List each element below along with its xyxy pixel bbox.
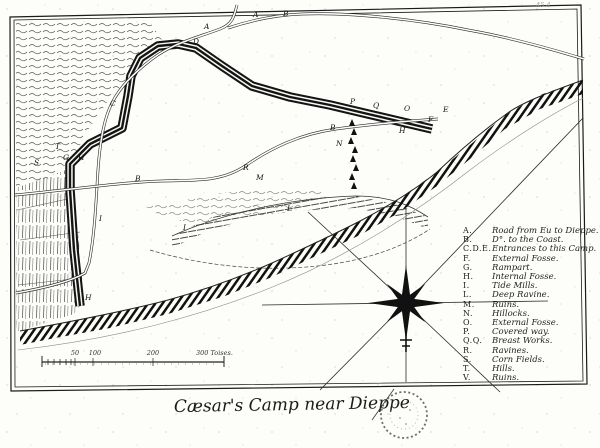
map-letter: M [255,173,264,182]
legend-item-letter: G. [463,263,473,272]
map-letter: A [203,22,210,31]
map-letter: N [335,139,343,148]
map-letter: A [252,10,259,19]
map-letter: H [77,153,85,162]
map-letter: Q [373,101,379,110]
legend-item-letter: C.D.E. [463,244,491,253]
map-letter: D [192,37,199,46]
legend-item-letter: L. [463,290,472,299]
map-letter: B [329,123,336,132]
map-letter: E [442,105,449,114]
legend-item-letter: R. [463,346,473,355]
scale-tick-label: 50 [71,349,79,357]
legend-item-letter: A. [462,226,472,235]
legend-item-label: Ruins. [491,373,519,383]
map-letter: S [34,158,39,167]
legend-item-letter: S. [463,355,472,364]
scale-tick-label: 100 [89,349,101,357]
map-letter: B [134,174,141,183]
map-letter: R [242,163,249,172]
legend-item-label: Breast Works. [491,336,552,346]
map-letter: P [349,97,356,106]
legend-item-letter: I. [463,281,470,290]
map-letter: B [282,9,289,18]
legend-item-label: Deep Ravine. [491,290,549,300]
legend-item-label: Entrances to this Camp. [491,244,596,254]
map-letter: L [286,204,292,213]
legend-item-letter: H. [463,272,474,281]
map-letter: H [84,293,92,302]
map-title: Cæsar's Camp near Dieppe [174,393,410,417]
legend-item-letter: V. [462,373,471,382]
legend-item-letter: O. [463,318,473,327]
map-canvas: 50 100 200 300 Toises. A. Road from Eu t… [0,0,600,448]
legend-item-letter: F. [463,254,471,263]
map-letter: G [63,153,69,162]
map-letter: H [398,126,406,135]
scale-tick-label: 300 Toises. [196,349,233,357]
scale-tick-label: 200 [146,349,159,357]
legend-item-letter: P. [463,327,470,336]
legend-item-letter: B. [463,235,472,244]
legend-item-letter: M. [463,300,475,309]
map-letter: C [110,99,116,108]
engraved-map-page: 50 100 200 300 Toises. A. Road from Eu t… [0,0,600,448]
legend-item-letter: N. [463,309,473,318]
map-letter: O [404,104,410,113]
map-letter: F [427,115,434,124]
legend-item-letter: T. [463,364,471,373]
legend-item-letter: Q.Q. [463,336,482,345]
corner-annotation: 45.4 [535,1,550,9]
